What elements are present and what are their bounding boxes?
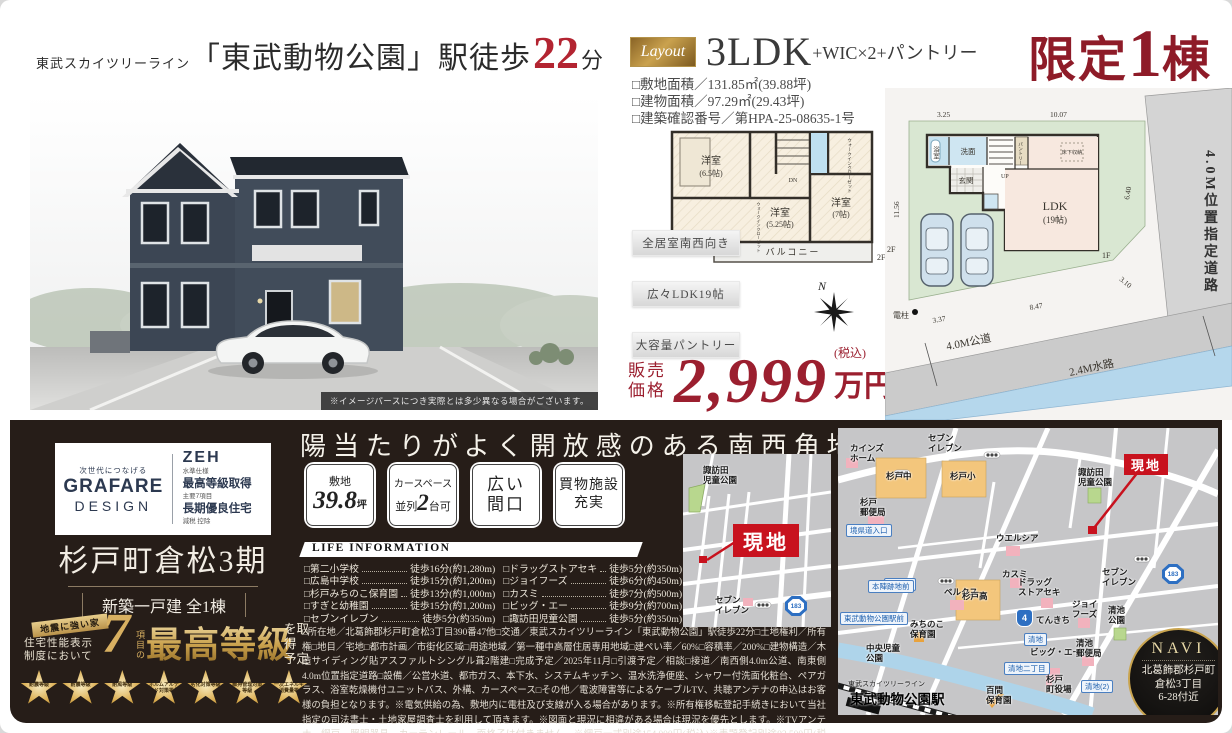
bottom-section: 次世代につなげる GRAFARE DESIGN ZEH 水準仕様 最高等級取得 …	[10, 420, 1222, 723]
grade-star-icon: ホルムアルデヒド対策等級	[145, 670, 183, 707]
map-place-label: みちのこ 保育園	[910, 620, 944, 639]
walk-minutes-unit: 分	[581, 43, 603, 75]
life-info-row: □広島中学校徒歩15分(約1,200m)	[304, 576, 495, 588]
map-place-label: セブン イレブン	[1102, 568, 1136, 587]
wic-label: ウォークインクローゼット	[847, 137, 853, 194]
layout-type: 3LDK	[706, 28, 812, 75]
dim-top2: 10.07	[1050, 110, 1067, 119]
point-badges: 敷地 39.8坪 カースペース 並列2台可 広い 間口 買物施設 充実	[304, 462, 625, 528]
facility-distance: 徒歩13分(約1,000m)	[410, 589, 495, 601]
map-place-label: 杉戸高	[962, 592, 988, 602]
badge-land-area: 敷地 39.8坪	[304, 462, 376, 528]
grade-star-icon: 劣化対策等級	[187, 670, 225, 707]
property-specs: □敷地面積／131.85㎡(39.88坪) □建物面積／97.29㎡(29.43…	[632, 76, 855, 127]
flyer-page: 東武スカイツリーライン 「東武動物公園」駅徒歩 22 分	[0, 0, 1232, 733]
map-place-label: 杉戸小	[950, 472, 976, 482]
grade7-highlight: 最高等級	[146, 616, 294, 668]
balcony-label: バルコニー	[766, 247, 821, 257]
life-info-row: □すぎと幼稚園徒歩15分(約1,200m)	[304, 601, 495, 613]
map-place-label: カインズ ホーム	[850, 444, 884, 463]
life-info-row: □セブンイレブン徒歩5分(約350m)	[304, 614, 495, 626]
map-place-label: セブン イレブン	[715, 596, 749, 615]
map-intersection-label: 清地(2)	[1081, 680, 1113, 693]
dotted-leader	[362, 571, 407, 572]
map-place-label: 杉戸 郵便局	[860, 498, 886, 517]
dotted-leader	[362, 583, 407, 584]
grade-star-label: 耐震等級	[66, 683, 96, 689]
map-intersection-label: 本陣跡地前	[868, 580, 914, 593]
layout-type-suffix: +WIC×2+パントリー	[812, 39, 977, 65]
grade-sub: 主要7項目	[183, 490, 271, 500]
route-badge-4: 4	[1016, 609, 1033, 627]
ldk-size-label: (19帖)	[1043, 214, 1067, 225]
grade-label: 最高等級取得	[183, 478, 271, 490]
grade-star-icon: 維持管理対策等級	[228, 670, 266, 707]
map-intersection-label: 清地	[1024, 633, 1047, 646]
map-place-label: セブン イレブン	[928, 434, 962, 453]
life-info-col-left: □第二小学校徒歩16分(約1,280m)□広島中学校徒歩15分(約1,200m)…	[304, 564, 495, 626]
brand-card: 次世代につなげる GRAFARE DESIGN ZEH 水準仕様 最高等級取得 …	[55, 443, 271, 535]
wash-label: 洗面	[961, 146, 976, 156]
station-name-label: 東武動物公園駅	[850, 688, 945, 708]
map-place-label: 百間 保育園	[986, 686, 1012, 705]
room1-name: 洋室	[701, 154, 721, 167]
facility-distance: 徒歩7分(約500m)	[609, 589, 682, 601]
dotted-leader	[571, 583, 607, 584]
compass-n: N	[817, 279, 827, 293]
grade-star-icon: 耐震等級	[62, 670, 100, 707]
pole-label: 電柱	[893, 310, 909, 320]
badge-wide-frontage: 広い 間口	[470, 462, 542, 528]
underfloor-label: 床下収納	[1062, 148, 1083, 156]
facility-distance: 徒歩5分(約350m)	[609, 564, 682, 576]
facility-name: □ビッグ・エー	[503, 601, 568, 613]
grade7-banner: 地震に強い家 住宅性能表示 制度において 7 項目の 最高等級 を取得 予定	[22, 616, 314, 670]
life-info-row: □第二小学校徒歩16分(約1,280m)	[304, 564, 495, 576]
layout-badge: Layout	[630, 37, 696, 67]
pantry-label: パントリー	[1018, 142, 1024, 165]
room2-name: 洋室	[770, 206, 790, 219]
facility-distance: 徒歩15分(約1,200m)	[410, 576, 495, 588]
up-label: UP	[1001, 174, 1009, 180]
life-info-row: □諏訪田児童公園徒歩5分(約350m)	[503, 614, 682, 626]
limited-banner: 限定1棟	[1028, 14, 1212, 93]
map-place-label: 杉戸 町役場	[1046, 675, 1072, 694]
facility-name: □すぎと幼稚園	[304, 601, 369, 613]
siteplan-1f: 3.25 10.07 11.56 6.40 3.10 8.47 3.37 電柱 …	[885, 88, 1232, 420]
floor1-label: 1F	[1102, 251, 1111, 260]
facility-distance: 徒歩5分(約350m)	[609, 614, 682, 626]
badge-car-space: カースペース 並列2台可	[387, 462, 459, 528]
limited-prefix: 限定	[1028, 34, 1128, 87]
brand-certifications: ZEH 水準仕様 最高等級取得 主要7項目 長期優良住宅 減税 控除	[173, 450, 271, 528]
navi-divider	[1142, 660, 1215, 661]
life-info-row: □ドラッグストアセキ徒歩5分(約350m)	[503, 564, 682, 576]
facility-distance: 徒歩15分(約1,200m)	[410, 601, 495, 613]
facility-name: □諏訪田児童公園	[503, 614, 578, 626]
map-place-label: ウエルシア	[996, 534, 1039, 544]
dotted-leader	[401, 596, 407, 597]
dotted-leader	[542, 596, 607, 597]
navi-circle: NAVI 北葛飾郡杉戸町 倉松3丁目 6-28付近	[1128, 628, 1218, 715]
longlife-sub: 減税 控除	[183, 515, 271, 525]
walk-minutes: 22	[533, 26, 579, 79]
project-title: 杉戸町倉松3期	[30, 536, 296, 580]
grade-star-label: 一次エネルギー消費量等級	[274, 683, 304, 694]
navi-address-3: 6-28付近	[1130, 691, 1218, 705]
navi-address-1: 北葛飾郡杉戸町	[1130, 664, 1218, 678]
facility-name: □第二小学校	[304, 564, 359, 576]
facility-name: □カスミ	[503, 589, 538, 601]
life-info-row: □杉戸みちのこ保育園徒歩13分(約1,000m)	[304, 589, 495, 601]
facility-distance: 徒歩5分(約350m)	[422, 614, 495, 626]
life-info-list: □第二小学校徒歩16分(約1,280m)□広島中学校徒歩15分(約1,200m)…	[304, 564, 650, 626]
life-info-title: LIFE INFORMATION	[312, 542, 450, 554]
navi-title: NAVI	[1130, 640, 1218, 658]
room3-size: (7帖)	[832, 209, 850, 219]
dotted-leader	[600, 571, 606, 572]
map-place-label: ドラッグ ストアセキ	[1018, 578, 1060, 597]
grade-star-label: 維持管理対策等級	[232, 683, 262, 694]
grade-star-label: ホルムアルデヒド対策等級	[149, 683, 179, 694]
map-intersection-label: 東武動物公園駅前	[840, 612, 908, 625]
rail-line-label: 東武スカイツリーライン	[36, 53, 190, 72]
map-place-label: 清池 公園	[1108, 606, 1125, 625]
stairs-dn-label: DN	[789, 178, 798, 184]
room2-size: (5.25帖)	[766, 219, 794, 229]
limited-count: 1	[1128, 15, 1162, 91]
map-place-label: ビッグ・エー	[1030, 648, 1081, 658]
dim-left: 11.56	[892, 201, 901, 218]
grade-star-label: 耐風等級	[107, 683, 137, 689]
legal-text: □所在地／北葛飾郡杉戸町倉松3丁目390番47他□交通／東武スカイツリーライン「…	[302, 626, 826, 733]
route-badge-183: 183	[1162, 564, 1184, 584]
brand-logo: 次世代につなげる GRAFARE DESIGN	[55, 465, 172, 514]
quake-ribbon: 地震に強い家	[31, 613, 108, 637]
compass-icon: N	[810, 278, 858, 338]
grade-star-icon: 耐震等級	[20, 670, 58, 707]
grade-star-label: 耐震等級	[24, 683, 54, 689]
facility-name: □杉戸みちのこ保育園	[304, 589, 398, 601]
road-right-label: 4.0M位置指定道路	[1199, 150, 1219, 295]
grade7-number: 7	[102, 602, 130, 666]
ldk-label: LDK	[1043, 199, 1068, 213]
area-map: カインズ ホームセブン イレブン杉戸中杉戸小杉戸 郵便局境県道入口杉戸(2)ウエ…	[838, 428, 1218, 715]
brand-tagline: 次世代につなげる	[55, 465, 172, 476]
dotted-leader	[581, 621, 606, 622]
dotted-leader	[382, 621, 420, 622]
feature-badge-ldk: 広々LDK19帖	[632, 281, 740, 307]
room1-size: (6.5帖)	[699, 168, 723, 178]
dotted-leader	[571, 608, 606, 609]
feature-badge-southwest: 全居室南西向き	[632, 230, 740, 256]
badge-land-value: 39.8坪	[313, 489, 367, 518]
map-place-label: 清池 郵便局	[1076, 639, 1102, 658]
map-place-label: ジョイ フーズ	[1072, 600, 1098, 619]
badge-car-value: 並列2台可	[395, 490, 451, 516]
price-block: 販売 価格 2,999 (税込) 万円	[628, 344, 894, 409]
life-info-col-right: □ドラッグストアセキ徒歩5分(約350m)□ジョイフーズ徒歩6分(約450m)□…	[503, 564, 682, 626]
zeh-sub: 水準仕様	[183, 465, 271, 475]
render-disclaimer: ※イメージパースにつき実際とは多少異なる場合がございます。	[321, 392, 598, 410]
map-place-label: 中央児童 公園	[866, 644, 900, 663]
dotted-leader	[372, 608, 407, 609]
grade-star-label: 劣化対策等級	[191, 683, 221, 689]
entrance-label: 玄関	[959, 175, 974, 185]
house-rendering: ※イメージパースにつき実際とは多少異なる場合がございます。	[30, 95, 598, 410]
floor2-side-label: 2F	[887, 245, 896, 254]
room3-name: 洋室	[831, 196, 851, 209]
badge-shopping: 買物施設 充実	[553, 462, 625, 528]
life-info-row: □ビッグ・エー徒歩9分(約700m)	[503, 601, 682, 613]
limited-suffix: 棟	[1162, 34, 1212, 87]
zeh-label: ZEH	[183, 450, 271, 465]
grade-star-icon: 耐風等級	[103, 670, 141, 707]
facility-distance: 徒歩16分(約1,280m)	[410, 564, 495, 576]
grade7-context: 住宅性能表示 制度において	[24, 637, 93, 663]
price-tax-note: (税込)	[834, 344, 866, 361]
price-label: 販売 価格	[628, 361, 666, 401]
header-access: 東武スカイツリーライン 「東武動物公園」駅徒歩 22 分	[36, 26, 603, 79]
detail-map: 諏訪田 児童公園現地セブン イレブン183	[683, 454, 831, 627]
facility-name: □セブンイレブン	[304, 614, 379, 626]
brand-name2: DESIGN	[55, 498, 172, 514]
site-location-marker: 現地	[733, 524, 799, 557]
map-intersection-label: 境県道入口	[846, 524, 892, 537]
layout-heading: Layout 3LDK +WIC×2+パントリー	[630, 28, 978, 75]
facility-name: □広島中学校	[304, 576, 359, 588]
title-divider	[68, 586, 258, 587]
facility-name: □ジョイフーズ	[503, 576, 567, 588]
brand-name: GRAFARE	[55, 476, 172, 498]
facility-name: □ドラッグストアセキ	[503, 564, 597, 576]
floorplan-2f: 洋室 (6.5帖) 洋室 (5.25帖) 洋室 (7帖) DN ウォークインクロ…	[658, 124, 886, 298]
dim-top1: 3.25	[937, 110, 950, 119]
map-place-label: 諏訪田 児童公園	[1078, 468, 1112, 487]
house-rendering-art	[30, 95, 598, 410]
facility-distance: 徒歩9分(約700m)	[609, 601, 682, 613]
price-amount: 2,999	[674, 353, 828, 409]
life-info-row: □カスミ徒歩7分(約500m)	[503, 589, 682, 601]
map-place-label: 杉戸中	[886, 472, 912, 482]
site-location-marker: 現地	[1124, 454, 1168, 475]
facility-distance: 徒歩6分(約450m)	[609, 576, 682, 588]
badge-car-top: カースペース	[394, 475, 452, 490]
map-place-label: 諏訪田 児童公園	[703, 466, 737, 485]
grade-stars: 耐震等級耐震等級耐風等級ホルムアルデヒド対策等級劣化対策等級維持管理対策等級一次…	[20, 670, 308, 707]
map-intersection-label: 清地二丁目	[1004, 662, 1050, 675]
longlife-label: 長期優良住宅	[183, 503, 271, 515]
map-place-label: てんきち	[1036, 616, 1070, 626]
wic2-label: ウォークインクローゼット	[757, 201, 762, 253]
navi-address-2: 倉松3丁目	[1130, 678, 1218, 692]
station-label: 「東武動物公園」駅徒歩	[190, 33, 531, 77]
life-info-row: □ジョイフーズ徒歩6分(約450m)	[503, 576, 682, 588]
